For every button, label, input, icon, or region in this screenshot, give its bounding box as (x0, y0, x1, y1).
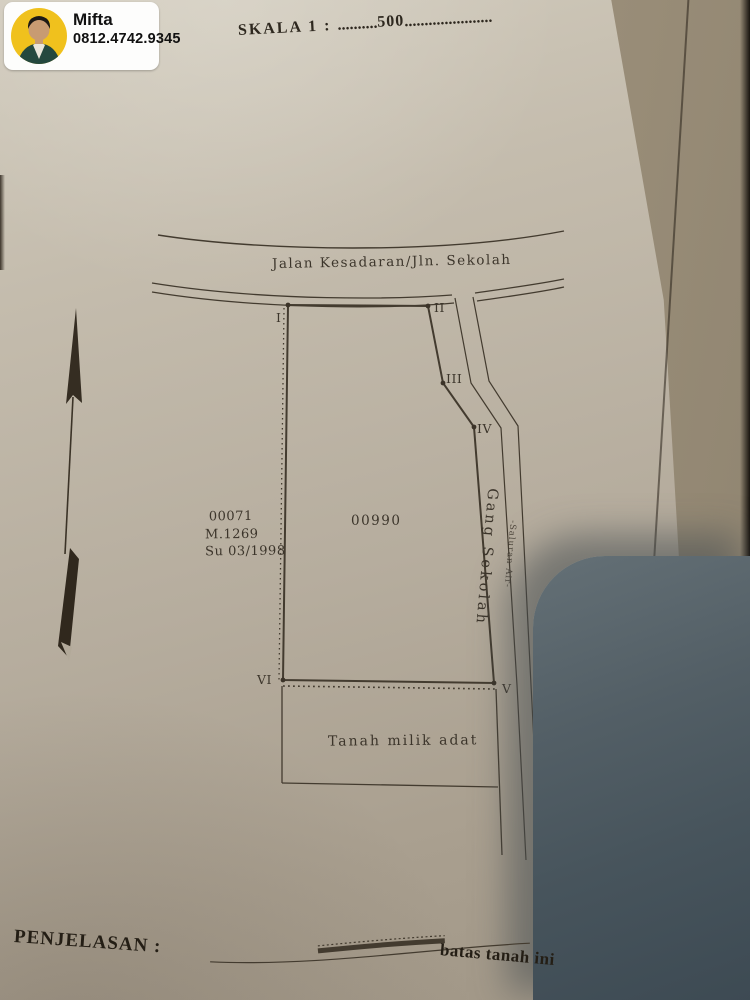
corner-marker-4: IV (477, 421, 492, 436)
scale-dots-right: ...................... (404, 9, 493, 31)
avatar (10, 7, 68, 65)
scale-line: SKALA 1 : ..........500.................… (238, 9, 493, 40)
parcel-id-label: 00990 (351, 513, 401, 529)
legend-title: PENJELASAN : (13, 926, 162, 958)
adjacent-parcel-id: 00071 (205, 508, 286, 526)
photo-left-dark-sliver (0, 175, 5, 270)
corner-marker-2: II (434, 300, 445, 315)
contact-phone: 0812.4742.9345 (73, 30, 181, 48)
north-arrow-icon (42, 302, 102, 677)
adjacent-parcel-labels: 00071 M.1269 Su 03/1998 (205, 508, 286, 561)
corner-marker-6: VI (257, 672, 272, 687)
scale-value: 500 (377, 12, 405, 30)
corner-marker-1: I (276, 310, 281, 325)
adjacent-parcel-su-number: Su 03/1998 (205, 543, 286, 561)
photo-shadow-object (533, 556, 750, 1000)
scale-label: SKALA 1 : (238, 17, 332, 39)
photographed-land-document: Mifta 0812.4742.9345 SKALA 1 : .........… (0, 0, 750, 1000)
south-area-label: Tanah milik adat (328, 732, 478, 749)
contact-card: Mifta 0812.4742.9345 (4, 2, 159, 70)
corner-marker-3: III (446, 371, 462, 386)
contact-name: Mifta (73, 10, 181, 30)
contact-card-text: Mifta 0812.4742.9345 (73, 10, 181, 48)
adjacent-parcel-m-number: M.1269 (205, 525, 286, 543)
corner-marker-5: V (502, 681, 512, 696)
scale-dots-left: .......... (337, 15, 378, 34)
